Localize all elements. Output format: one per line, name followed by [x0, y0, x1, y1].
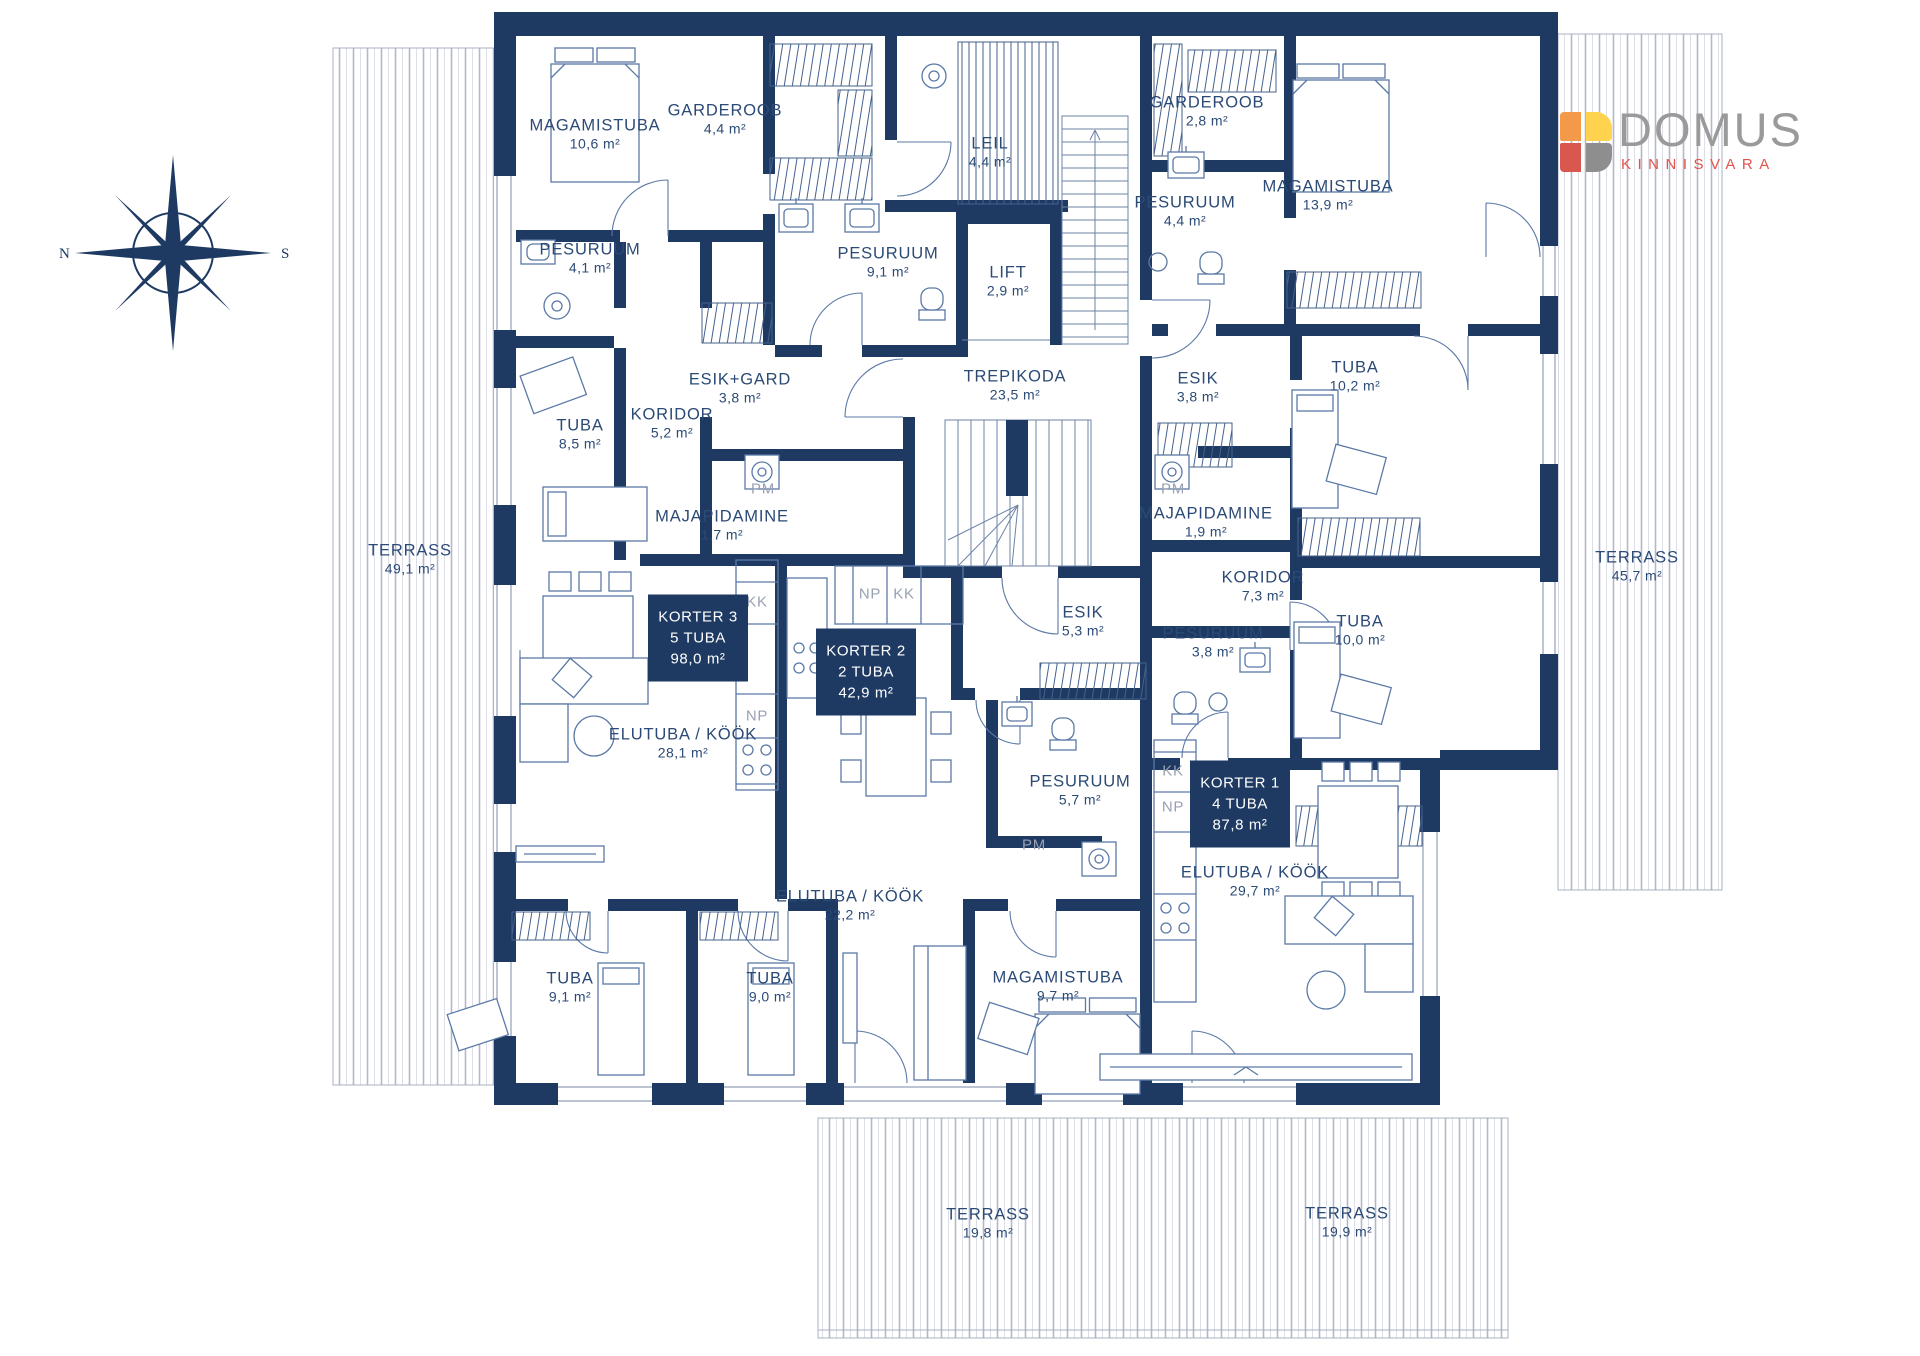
logo-square-orange: [1560, 112, 1581, 141]
logo-square-yellow: [1586, 112, 1612, 141]
brand-logo: DOMUS KINNISVARA: [1560, 110, 1910, 180]
logo-square-gray: [1586, 143, 1612, 172]
apartment-badge: KORTER 35 TUBA98,0 m²: [648, 595, 748, 682]
apartment-badge: KORTER 14 TUBA87,8 m²: [1190, 761, 1290, 848]
brand-name: DOMUS: [1618, 102, 1803, 157]
compass-left-label: N: [59, 246, 70, 262]
compass-right-label: S: [281, 246, 289, 262]
floor-plan-page: N S DOMUS KINNISVARA MAGAMISTUBA10,6 m²G…: [0, 0, 1920, 1356]
apartment-badge: KORTER 22 TUBA42,9 m²: [816, 629, 916, 716]
brand-subtitle: KINNISVARA: [1621, 156, 1776, 173]
logo-square-red: [1560, 143, 1581, 172]
compass-rose: N S: [55, 135, 295, 375]
